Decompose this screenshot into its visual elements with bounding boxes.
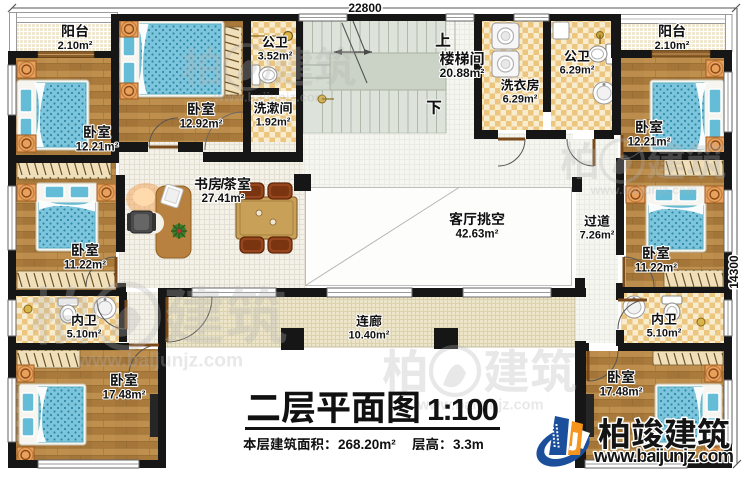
svg-text:/: / [221, 175, 225, 191]
svg-text:42.63m²: 42.63m² [456, 229, 499, 241]
svg-text:12.92m²: 12.92m² [180, 119, 223, 131]
svg-text:11.22m²: 11.22m² [635, 263, 677, 275]
svg-text:27.41m²: 27.41m² [202, 193, 245, 205]
svg-text:3.3m: 3.3m [453, 437, 484, 452]
svg-text:17.48m²: 17.48m² [103, 390, 146, 402]
svg-text:20.88m²: 20.88m² [440, 66, 485, 80]
svg-text:12.21m²: 12.21m² [76, 142, 119, 154]
svg-text:www.baijunjz.com: www.baijunjz.com [590, 183, 698, 197]
svg-text:3.52m²: 3.52m² [258, 51, 293, 63]
svg-text:www.baijunjz.com: www.baijunjz.com [76, 351, 243, 372]
svg-text:1:100: 1:100 [427, 392, 499, 427]
svg-text:6.29m²: 6.29m² [560, 65, 595, 77]
svg-text:268.20m²: 268.20m² [338, 437, 396, 452]
svg-text:1.92m²: 1.92m² [256, 117, 291, 129]
svg-text:5.10m²: 5.10m² [67, 329, 102, 341]
svg-text:14300: 14300 [727, 255, 741, 289]
svg-text:12.21m²: 12.21m² [628, 137, 671, 149]
svg-text:5.10m²: 5.10m² [647, 328, 682, 340]
svg-text:6.29m²: 6.29m² [503, 94, 538, 106]
svg-text:11.22m²: 11.22m² [64, 260, 106, 272]
svg-text:2.10m²: 2.10m² [58, 40, 93, 52]
svg-text:22800: 22800 [348, 1, 382, 15]
svg-text:7.26m²: 7.26m² [580, 230, 615, 242]
svg-text:10.40m²: 10.40m² [349, 330, 390, 342]
svg-text:17.48m²: 17.48m² [600, 387, 643, 399]
svg-text:2.10m²: 2.10m² [655, 40, 690, 52]
svg-text:www.baijunjz.com: www.baijunjz.com [593, 445, 734, 466]
